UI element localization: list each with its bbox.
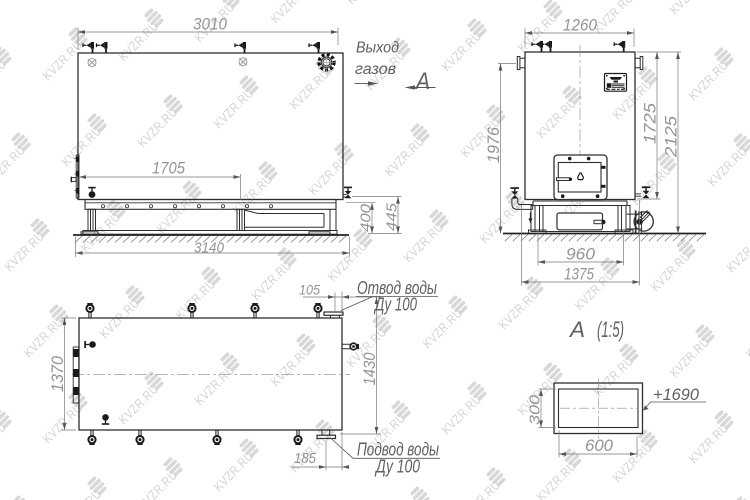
svg-text:2125: 2125 xyxy=(662,115,681,158)
svg-text:1430: 1430 xyxy=(360,352,379,385)
svg-text:1725: 1725 xyxy=(641,102,660,144)
svg-text:1375: 1375 xyxy=(564,265,594,284)
svg-text:Выход: Выход xyxy=(356,40,399,57)
svg-text:(1:5): (1:5) xyxy=(597,317,624,342)
svg-text:3140: 3140 xyxy=(194,240,225,257)
svg-text:1370: 1370 xyxy=(48,355,67,392)
svg-text:1705: 1705 xyxy=(152,159,185,178)
svg-text:газов: газов xyxy=(355,61,396,78)
svg-text:+1690: +1690 xyxy=(653,385,700,404)
svg-text:А: А xyxy=(568,317,585,342)
svg-text:600: 600 xyxy=(585,436,614,455)
svg-text:400: 400 xyxy=(358,203,375,232)
svg-text:А: А xyxy=(414,68,430,95)
svg-text:300: 300 xyxy=(527,394,544,425)
svg-text:960: 960 xyxy=(566,245,596,264)
svg-text:185: 185 xyxy=(294,450,317,467)
svg-text:Ду 100: Ду 100 xyxy=(374,295,417,315)
svg-text:Ду 100: Ду 100 xyxy=(374,457,420,477)
svg-text:105: 105 xyxy=(299,282,320,298)
svg-text:3010: 3010 xyxy=(193,15,227,34)
svg-text:1976: 1976 xyxy=(484,126,503,163)
svg-text:445: 445 xyxy=(384,202,401,231)
svg-text:1260: 1260 xyxy=(563,16,597,35)
